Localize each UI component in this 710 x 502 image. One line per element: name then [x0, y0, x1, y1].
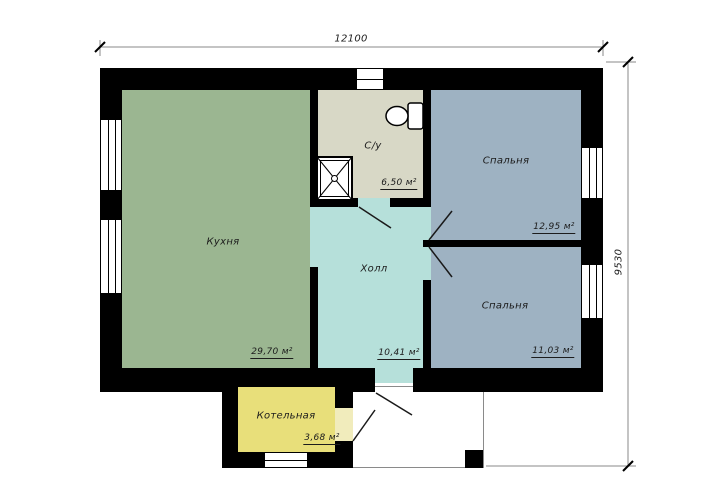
shower-icon: [317, 157, 352, 200]
room-hall-label: Холл: [361, 264, 388, 275]
door-leaf-bathroom: [359, 207, 391, 228]
dimension-height-label: 9530: [614, 249, 625, 276]
room-hall-area: 10,41 м²: [377, 348, 420, 360]
room-kitchen-area: 29,70 м²: [250, 347, 293, 359]
door-leaf-boiler: [353, 410, 375, 441]
door-leaf-bedroom-bottom: [429, 247, 452, 277]
door-leaf-bedroom-top: [429, 211, 452, 240]
room-bedroom-top-label: Спальня: [483, 156, 530, 167]
room-bedroom-bottom-area: 11,03 м²: [531, 346, 574, 358]
door-leaf-entrance: [376, 393, 412, 415]
room-boiler-label: Котельная: [257, 411, 316, 422]
room-boiler-area: 3,68 м²: [303, 433, 340, 445]
toilet-icon: [386, 103, 423, 129]
floor-plan: 12100 9530 Кухня 29,70 м² С/у 6,50 м² Сп…: [0, 0, 710, 502]
plan-annotations-svg: [0, 0, 710, 502]
dimension-width-label: 12100: [334, 34, 367, 45]
room-bathroom-label: С/у: [364, 141, 381, 152]
room-kitchen-label: Кухня: [207, 237, 240, 248]
room-bedroom-top-area: 12,95 м²: [532, 222, 575, 234]
room-bathroom-area: 6,50 м²: [380, 178, 417, 190]
room-bedroom-bottom-label: Спальня: [482, 301, 529, 312]
